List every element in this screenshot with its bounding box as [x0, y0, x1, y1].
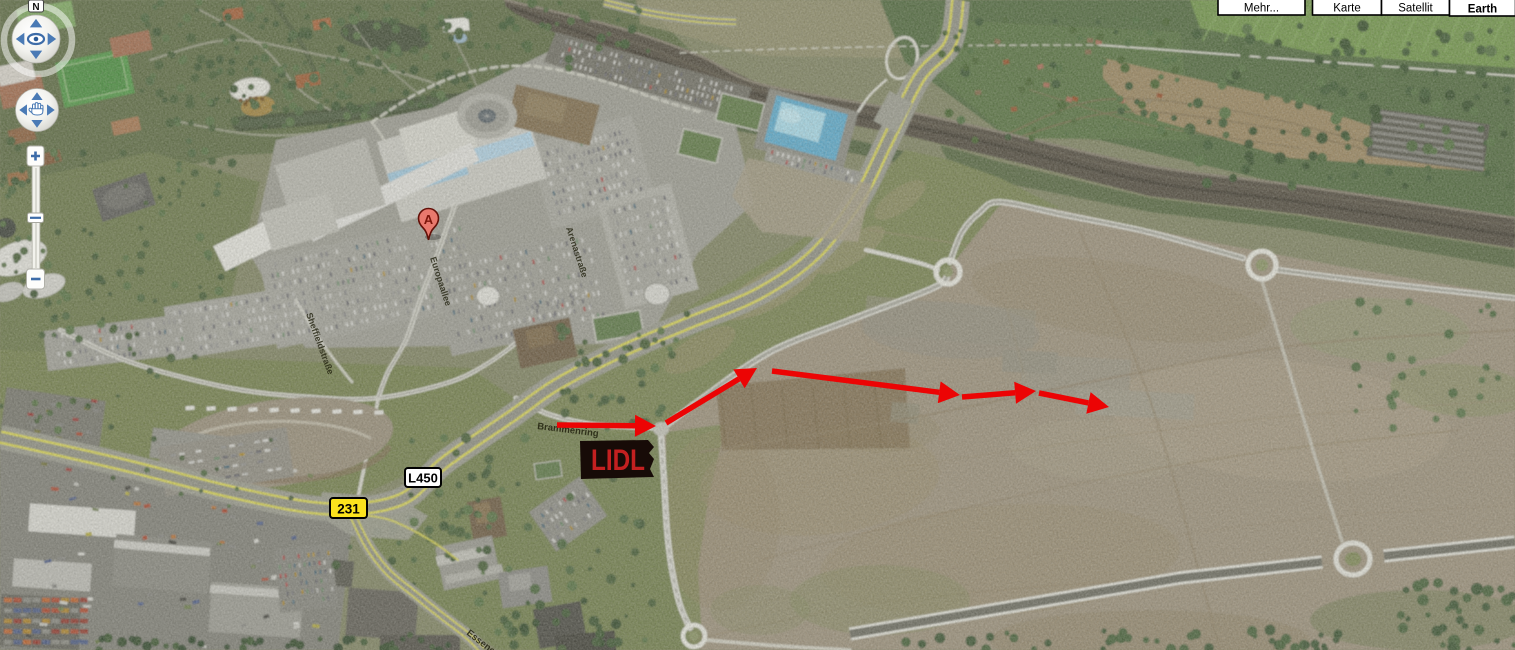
svg-text:A: A — [424, 212, 434, 227]
svg-text:L450: L450 — [408, 471, 438, 486]
svg-text:Karte: Karte — [1333, 3, 1361, 15]
svg-text:Earth: Earth — [1468, 4, 1497, 16]
svg-text:Satellit: Satellit — [1398, 3, 1433, 15]
svg-text:231: 231 — [337, 502, 360, 517]
svg-text:N: N — [32, 2, 39, 13]
svg-text:LIDL: LIDL — [591, 444, 645, 477]
svg-text:Mehr...: Mehr... — [1244, 3, 1279, 15]
